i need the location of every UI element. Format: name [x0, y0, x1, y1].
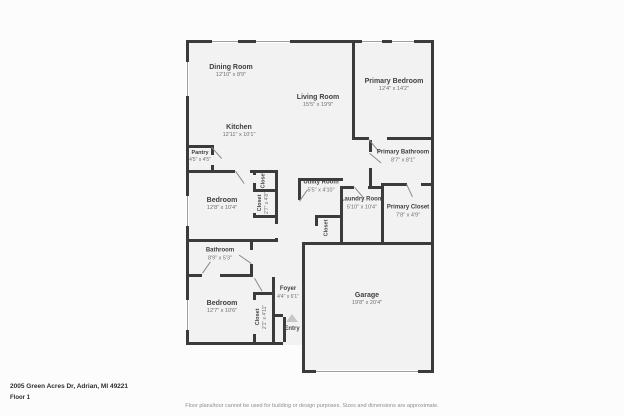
- window: [186, 62, 189, 96]
- room-name: Living Room: [297, 93, 339, 102]
- wall: [340, 186, 343, 242]
- room-label-garage: Garage 19'8" x 20'4": [352, 291, 382, 307]
- room-dims: 15'5" x 19'9": [297, 102, 339, 109]
- room-label-pantry: Pantry 4'5" x 4'5": [189, 150, 211, 164]
- wall: [253, 170, 256, 175]
- room-dims: 4'4" x 6'1": [277, 294, 299, 301]
- room-label-kitchen: Kitchen 12'11" x 10'1": [223, 123, 256, 139]
- wall: [387, 137, 434, 140]
- room-label-closet-hall: Closet: [323, 220, 330, 237]
- garage-door: [316, 370, 418, 373]
- floor-plan: Dining Room 12'10" x 8'9" Living Room 15…: [0, 0, 624, 416]
- room-dims: 2'7" x 4'8": [264, 192, 271, 214]
- wall: [340, 186, 354, 189]
- wall: [381, 183, 384, 242]
- wall: [186, 342, 283, 345]
- wall: [253, 334, 256, 342]
- room-name: Pantry: [189, 150, 211, 157]
- wall: [186, 274, 202, 277]
- wall: [302, 242, 305, 373]
- room-dims: 8'7" x 8'1": [377, 157, 429, 164]
- room-name: Dining Room: [209, 63, 253, 72]
- room-dims: 19'8" x 20'4": [352, 300, 382, 307]
- wall: [272, 277, 275, 342]
- wall: [253, 215, 275, 218]
- window: [392, 40, 414, 43]
- disclaimer-text: Floor plans/tour cannot be used for buil…: [0, 403, 624, 409]
- room-dims: 12'4" x 14'2": [365, 86, 424, 93]
- room-name: Primary Closet: [387, 205, 429, 213]
- room-dims: 2'1" x 4'11": [262, 305, 269, 329]
- room-dims: 8'9" x 5'3": [206, 255, 234, 262]
- room-label-laundry-room: Laundry Room 5'10" x 10'4": [341, 197, 383, 212]
- wall: [352, 137, 369, 140]
- wall: [421, 183, 434, 186]
- room-dims: 12'8" x 10'4": [207, 205, 238, 212]
- room-label-foyer: Foyer 4'4" x 6'1": [277, 286, 299, 300]
- room-label-utility-room: Utility Room 5'5" x 4'10": [303, 180, 338, 195]
- room-name: Laundry Room: [341, 197, 383, 205]
- window: [212, 40, 238, 43]
- address-text: 2005 Green Acres Dr, Adrian, MI 49221: [10, 383, 128, 390]
- room-name: Utility Room: [303, 180, 338, 188]
- window: [186, 300, 189, 330]
- room-name: Closet: [257, 192, 264, 214]
- wall: [315, 215, 343, 218]
- wall: [381, 183, 407, 186]
- wall: [369, 168, 372, 186]
- floor-area-garage: [302, 242, 434, 373]
- room-dims: 12'7" x 10'6": [207, 308, 238, 315]
- room-name: Foyer: [277, 286, 299, 294]
- wall: [253, 292, 256, 300]
- room-label-bathroom: Bathroom 8'9" x 5'3": [206, 248, 234, 263]
- wall: [431, 40, 434, 373]
- room-name: Primary Bedroom: [365, 77, 424, 86]
- room-name: Primary Bathroom: [377, 150, 429, 158]
- window: [256, 40, 290, 43]
- room-dims: 5'5" x 4'10": [303, 187, 338, 194]
- wall: [186, 239, 278, 242]
- room-dims: 12'11" x 10'1": [223, 132, 256, 139]
- room-label-closet-foyer: Closet 2'1" x 4'11": [255, 305, 269, 329]
- room-name: Bedroom: [207, 196, 238, 205]
- wall: [368, 186, 384, 189]
- window: [362, 40, 382, 43]
- room-label-primary-closet: Primary Closet 7'8" x 4'9": [387, 205, 429, 220]
- room-label-bedroom-1: Bedroom 12'8" x 10'4": [207, 196, 238, 212]
- entry-label: Entry: [284, 326, 299, 332]
- wall: [352, 40, 355, 140]
- room-name: Closet: [255, 305, 262, 329]
- room-name: Closet: [260, 172, 267, 189]
- room-label-primary-bedroom: Primary Bedroom 12'4" x 14'2": [365, 77, 424, 93]
- wall: [186, 170, 235, 173]
- room-name: Bedroom: [207, 299, 238, 308]
- wall: [315, 218, 318, 226]
- wall: [272, 314, 283, 317]
- entry-arrow-icon: [286, 314, 298, 322]
- room-dims: 12'10" x 8'9": [209, 72, 253, 79]
- room-label-bedroom-2: Bedroom 12'7" x 10'6": [207, 299, 238, 315]
- wall: [220, 274, 253, 277]
- wall: [275, 170, 278, 224]
- room-name: Garage: [352, 291, 382, 300]
- room-label-closet-b: Closet 2'7" x 4'8": [257, 192, 271, 214]
- room-label-dining-room: Dining Room 12'10" x 8'9": [209, 63, 253, 79]
- room-label-primary-bathroom: Primary Bathroom 8'7" x 8'1": [377, 150, 429, 165]
- floor-label: Floor 1: [10, 395, 30, 401]
- room-dims: 5'10" x 10'4": [341, 204, 383, 211]
- room-name: Bathroom: [206, 248, 234, 256]
- wall: [302, 242, 434, 245]
- room-label-closet-a: Closet: [260, 172, 267, 189]
- room-dims: 4'5" x 4'5": [189, 157, 211, 164]
- wall: [186, 145, 214, 148]
- room-name: Closet: [323, 220, 330, 237]
- room-name: Kitchen: [223, 123, 256, 132]
- room-dims: 7'8" x 4'9": [387, 212, 429, 219]
- room-label-living-room: Living Room 15'5" x 19'9": [297, 93, 339, 109]
- window: [186, 196, 189, 226]
- wall: [250, 242, 253, 250]
